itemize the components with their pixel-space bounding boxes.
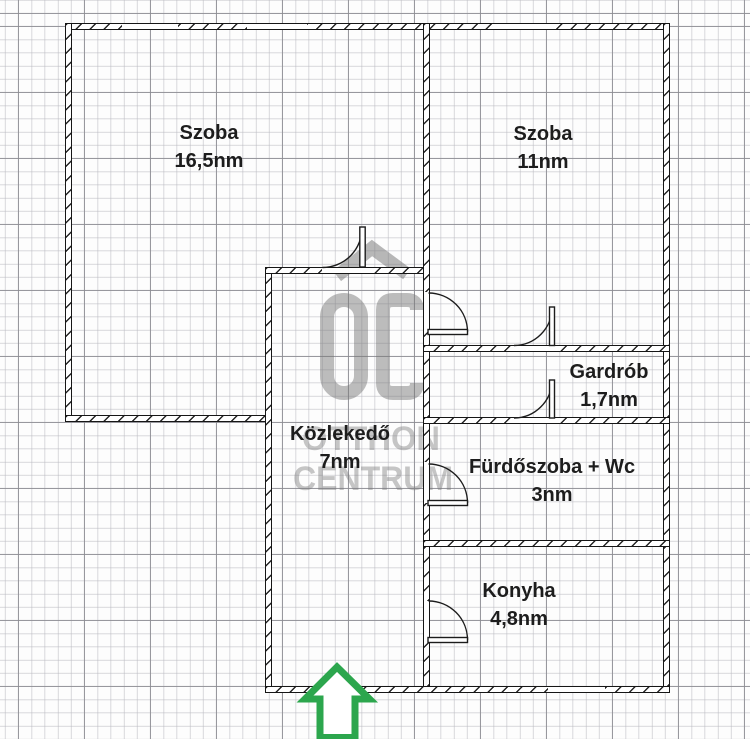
wall-furdo-bottom — [423, 540, 670, 547]
room-area: 11nm — [514, 148, 573, 176]
wall-corridor-left — [265, 267, 272, 693]
room-label-szoba-2: Szoba 11nm — [514, 120, 573, 176]
room-name: Konyha — [482, 577, 555, 605]
wall-outer-left — [65, 23, 72, 422]
window-szoba1-left — [122, 23, 178, 30]
room-name: Közlekedő — [290, 420, 390, 448]
room-area: 7nm — [290, 448, 390, 476]
room-label-kozlekedo: Közlekedő 7nm — [290, 420, 390, 476]
wall-center-vertical — [423, 23, 430, 693]
watermark-oc-monogram — [327, 300, 417, 393]
room-area: 4,8nm — [482, 605, 555, 633]
door-opening-furdoszoba — [423, 462, 430, 503]
room-name: Fürdőszoba + Wc — [469, 453, 635, 481]
room-name: Szoba — [175, 119, 244, 147]
room-area: 1,7nm — [570, 386, 649, 414]
door-opening-konyha — [423, 601, 430, 640]
wall-outer-bottom — [265, 686, 670, 693]
window-konyha — [548, 686, 605, 693]
room-area: 3nm — [469, 481, 635, 509]
room-area: 16,5nm — [175, 147, 244, 175]
window-szoba1-right — [247, 23, 307, 30]
wall-bigroom-bottom — [65, 415, 272, 422]
room-label-furdoszoba: Fürdőszoba + Wc 3nm — [469, 453, 635, 509]
room-name: Szoba — [514, 120, 573, 148]
window-szoba2 — [493, 23, 550, 30]
door-opening-szoba1 — [322, 267, 367, 274]
room-label-gardrob: Gardrób 1,7nm — [570, 358, 649, 414]
door-opening-gardrob-north — [512, 345, 557, 352]
room-label-konyha: Konyha 4,8nm — [482, 577, 555, 633]
room-label-szoba-1: Szoba 16,5nm — [175, 119, 244, 175]
door-opening-szoba2 — [423, 292, 430, 332]
door-opening-gardrob-south — [512, 417, 557, 424]
wall-outer-right — [663, 23, 670, 693]
room-name: Gardrób — [570, 358, 649, 386]
floorplan-page: OTTHON CENTRUM — [0, 0, 750, 739]
